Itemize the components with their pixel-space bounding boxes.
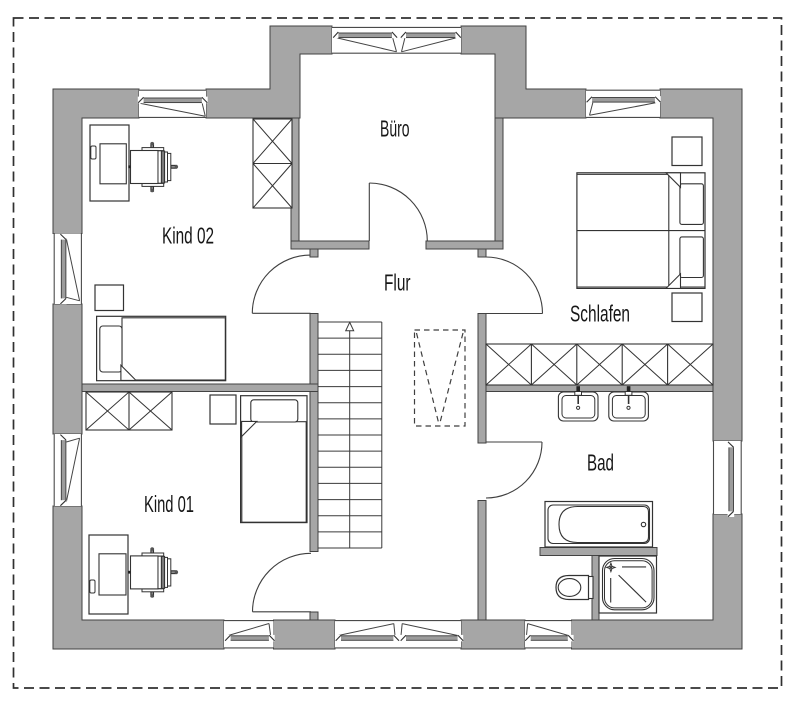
svg-text:Kind 01: Kind 01: [144, 491, 194, 517]
svg-text:Kind 02: Kind 02: [162, 223, 214, 249]
svg-text:Bad: Bad: [587, 450, 614, 476]
svg-text:Schlafen: Schlafen: [570, 301, 630, 327]
svg-text:Büro: Büro: [380, 116, 410, 142]
svg-text:Flur: Flur: [384, 270, 411, 296]
